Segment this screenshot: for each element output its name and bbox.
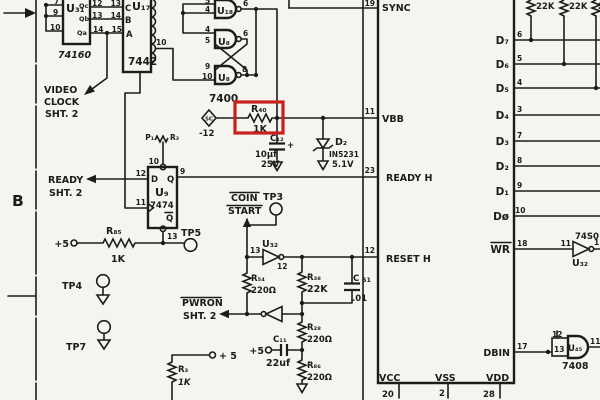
r38-ref: R₃₈	[307, 273, 321, 283]
wr-label: WR	[490, 244, 510, 256]
junction-dot	[300, 348, 304, 352]
pullup-resistors: 22K 22K 22K	[527, 0, 600, 90]
wr-inv-pin-out: 1	[594, 238, 599, 247]
u9-pin10: 10	[149, 157, 159, 166]
tp7-testpoint-icon	[98, 321, 111, 334]
d5-label: D₅	[496, 83, 510, 95]
r54-ref: R₅₄	[251, 274, 265, 284]
u17-in-b: B	[125, 16, 131, 26]
r3-plus5-label: + 5	[219, 351, 237, 362]
r54-value: 220Ω	[251, 286, 276, 296]
r3-network: + 5 R₃ 1K	[168, 351, 237, 400]
r85-resistor	[103, 239, 135, 247]
wr-inverter-icon	[573, 242, 589, 257]
c11-plus5-label: +5	[249, 346, 264, 357]
u45-ref: U₄₅	[568, 344, 583, 354]
junction-dot	[44, 3, 48, 7]
u8a-pin6: 6	[243, 29, 248, 38]
video-clock-arrow-icon	[84, 85, 95, 95]
data-bus-wires	[514, 40, 600, 352]
video-clock-wire	[92, 33, 107, 89]
d2-pin: 8	[517, 156, 522, 165]
pullup-value-2: 22K	[569, 2, 588, 12]
coin-label: COIN	[231, 193, 258, 204]
u9-ref: U₉	[155, 186, 169, 199]
u8b-pin9: 9	[205, 62, 210, 71]
reset-h-label: RESET H	[386, 254, 431, 265]
vdd-label: VDD	[486, 373, 509, 384]
u8b-ref: U₈	[218, 73, 230, 84]
junction-dot	[275, 116, 279, 120]
ready-out-arrow-icon	[86, 175, 96, 183]
video-clock-line1: VIDEO	[44, 85, 77, 96]
minus12-label: -12	[199, 129, 214, 139]
u8a-ref: U₈	[218, 37, 230, 48]
u18-pin4: 4	[205, 5, 210, 14]
junction-dot	[105, 31, 109, 35]
u45-pin11: 11	[590, 337, 600, 346]
wr-pin-number: 18	[517, 239, 527, 248]
u18-bubble-icon	[236, 7, 241, 12]
u9-pin11: 11	[136, 198, 146, 207]
dbin-gate-u45: 12 13 U₄₅ 11 7408	[546, 330, 600, 372]
pwron-inverter-icon	[266, 307, 282, 322]
d6-pin: 5	[517, 54, 522, 63]
schematic-scan: B U₃₁ Qc Qb Qa 7 9 10 12 13 14 74160 U₁₇…	[0, 0, 600, 400]
junction-dot	[350, 255, 354, 259]
junction-dot	[161, 241, 165, 245]
d1-label: D₁	[496, 186, 510, 198]
pwron-label: PWRON	[182, 298, 223, 309]
dbin-pin-number: 17	[517, 342, 527, 351]
junction-dot	[254, 73, 258, 77]
r86-resistor	[298, 360, 306, 380]
sync-pin-number: 19	[365, 0, 375, 8]
vcc-pin-number: 20	[382, 390, 394, 400]
r28-resistor	[298, 322, 306, 342]
plus5-terminal-icon	[210, 352, 216, 358]
u8a-pin4: 4	[205, 25, 210, 34]
u17-pin14: 14	[111, 11, 121, 20]
u32-coin-pin12: 12	[277, 262, 287, 271]
r86-value: 220Ω	[307, 373, 332, 383]
junction-dot	[300, 255, 304, 259]
r3-ref: R₃	[178, 365, 189, 375]
zone-label: B	[12, 192, 24, 210]
u9-d-label: D	[151, 175, 158, 185]
pullup-resistor-1	[527, 0, 535, 16]
d7-label: D₇	[496, 35, 509, 47]
d4-pin: 3	[517, 105, 522, 114]
r85-ref: R₈₅	[106, 226, 122, 237]
u17-pin10: 10	[156, 38, 166, 47]
junction-dot	[594, 86, 598, 90]
vss-pin-number: 2	[439, 389, 445, 399]
d2-part: IN5231	[329, 150, 359, 159]
u17-part: 7442	[128, 56, 157, 68]
u32-coin-bubble-icon	[279, 255, 284, 260]
u9-qbar-label: Q	[166, 214, 173, 224]
u31-part: 74160	[58, 50, 91, 61]
c51-ref: C	[353, 274, 359, 284]
r86-ref: R₈₆	[307, 361, 321, 371]
c51-value: .01	[352, 294, 367, 304]
cpu-body	[378, 0, 514, 383]
junction-dot	[181, 11, 185, 15]
junction-dot	[300, 301, 304, 305]
pwron-sht2-label: SHT. 2	[183, 311, 216, 322]
vss-label: VSS	[435, 373, 456, 384]
junction-dot	[321, 116, 325, 120]
vcc-label: VCC	[379, 373, 400, 384]
d7-pin: 6	[517, 30, 522, 39]
power-source-ref: 5C	[205, 117, 213, 123]
wr-inverter: 11 74S0 U₃₂ 1	[561, 232, 600, 269]
r85-plus5-label: +5	[54, 239, 69, 250]
d1-pin: 9	[517, 181, 522, 190]
plus5-terminal-icon	[71, 240, 77, 246]
wr-inv-pin11: 11	[561, 239, 571, 248]
d3-label: D₃	[496, 136, 510, 148]
junction-dot	[44, 14, 48, 18]
u8b-bubble-icon	[236, 73, 241, 78]
junction-dot	[562, 62, 566, 66]
ready-pin-number: 23	[365, 166, 375, 175]
schematic-svg: B U₃₁ Qc Qb Qa 7 9 10 12 13 14 74160 U₁₇…	[0, 0, 600, 400]
u9-pin12: 12	[136, 169, 146, 178]
ready-out-line1: READY	[48, 175, 83, 186]
r28-ref: R₂₈	[307, 323, 321, 333]
tp4-testpoint-icon	[97, 275, 110, 288]
coin-start-reset: COIN START TP3 U₃₂ 13 12 R₅₄ 220Ω R₃₈ 22…	[181, 192, 378, 393]
r40-resistor	[248, 114, 272, 122]
start-label: START	[228, 206, 262, 217]
junction-dot	[300, 312, 304, 316]
preset-p-label: P₁	[145, 133, 154, 142]
d2-ground-icon	[318, 161, 328, 170]
vbb-pin-number: 11	[365, 107, 375, 116]
tp5-label: TP5	[181, 228, 201, 239]
u31-qa: Qa	[77, 29, 87, 37]
ready-h-label: READY H	[386, 173, 433, 184]
junction-dot	[546, 350, 550, 354]
d2-ref: D₂	[335, 137, 347, 148]
preset-resistor	[155, 136, 168, 142]
r28-value: 220Ω	[307, 335, 332, 345]
u31-pin12: 12	[92, 0, 102, 8]
pullup-value-1: 22K	[536, 2, 555, 12]
u9-pin13: 13	[167, 232, 177, 241]
tp5-testpoint-icon	[184, 239, 197, 252]
pwron-bubble-icon	[261, 312, 266, 317]
plus5-terminal-icon	[266, 347, 272, 353]
sync-latch-7400: U₁₈ U₈ U₈ 5 4 6 4 5 6 9 10 8 7400	[181, 0, 289, 118]
u9-part: 7474	[150, 201, 174, 211]
cpu-8080: 19 SYNC 11 VBB 23 READY H 12 RESET H DBI…	[289, 0, 600, 400]
c12-ref: C₁₂	[270, 134, 284, 144]
ready-out-line2: SHT. 2	[49, 188, 82, 199]
tp3-label: TP3	[263, 192, 283, 203]
u45-pin13: 13	[554, 345, 564, 354]
u17-ref: U₁₇	[132, 0, 151, 13]
u31-pin9: 9	[53, 8, 58, 17]
u31-pin14: 14	[93, 25, 103, 34]
junction-dot	[254, 7, 258, 11]
vbb-label: VBB	[382, 114, 404, 125]
r3-resistor	[168, 362, 176, 382]
test-points: TP4 TP7	[62, 275, 110, 353]
u31-qc: Qc	[79, 2, 89, 10]
tp4-label: TP4	[62, 281, 82, 292]
u32-coin-ref: U₃₂	[262, 239, 278, 250]
u18-ref: U₁₈	[217, 6, 233, 17]
d3-pin: 7	[517, 131, 522, 140]
preset-r-label: R₃	[170, 133, 179, 142]
c51-capacitor	[344, 284, 360, 291]
vdd-pin-number: 28	[483, 390, 495, 400]
video-clock-line3: SHT. 2	[45, 109, 78, 120]
sheet-frame: B	[4, 0, 36, 400]
junction-dot	[245, 255, 249, 259]
d6-label: D₆	[496, 59, 510, 71]
r54-resistor	[243, 273, 251, 293]
u8a-bubble-icon	[236, 37, 241, 42]
r85-value: 1K	[111, 254, 126, 265]
dbin-label: DBIN	[483, 348, 510, 359]
c12-voltage: 25V	[261, 160, 280, 170]
reset-pin-number: 12	[365, 246, 375, 255]
tp7-label: TP7	[66, 342, 86, 353]
d0-label: Dø	[493, 211, 509, 223]
entry-arrow-icon	[25, 8, 36, 18]
junction-dot	[245, 312, 249, 316]
r3-value: 1K	[178, 378, 192, 388]
u31-pin10: 10	[50, 23, 60, 32]
d2-label: D₂	[496, 161, 510, 173]
pwron-arrow-icon	[219, 310, 229, 318]
d5-pin: 4	[517, 78, 522, 87]
u17-in-c: C	[125, 4, 131, 14]
u17-pin13: 13	[111, 0, 121, 8]
tp7-ground-icon	[98, 340, 110, 349]
c12-capacitor	[269, 144, 285, 150]
u31-pin13: 13	[92, 11, 102, 20]
u17-in-a: A	[126, 30, 133, 40]
junction-dot	[529, 38, 533, 42]
vbb-network: 5C -12 R₄₀ 1K C₁₂ + 10μf 25V D₂ IN5231 5…	[199, 102, 378, 171]
u9-pin9: 9	[180, 167, 185, 176]
u8b-pin8: 8	[242, 65, 247, 74]
pullup-wires	[531, 16, 596, 88]
c11-value: 22uf	[266, 358, 291, 369]
d2-voltage: 5.1V	[332, 160, 354, 170]
tp4-ground-icon	[97, 295, 109, 304]
c12-value: 10μf	[255, 150, 277, 160]
d0-pin: 10	[515, 206, 525, 215]
u45-pin12: 12	[552, 330, 562, 339]
sync-label: SYNC	[382, 3, 411, 14]
video-clock-line2: CLOCK	[44, 97, 80, 108]
r38-resistor	[298, 272, 306, 292]
r40-ref: R₄₀	[251, 104, 267, 115]
u8b-pin10: 10	[202, 72, 212, 81]
r38-value: 22K	[307, 284, 328, 295]
u31-pin7: 7	[54, 0, 59, 6]
c12-plus: +	[287, 141, 294, 151]
tp3-testpoint-icon	[270, 203, 282, 215]
u17-pin15: 15	[112, 25, 122, 34]
wr-inv-ref: U₃₂	[572, 258, 588, 269]
c11-ref: C₁₁	[273, 335, 287, 345]
u18-pin6: 6	[243, 0, 248, 8]
u9-q-label: Q	[167, 175, 174, 185]
pullup-resistor-2	[560, 0, 568, 16]
c11-capacitor	[281, 344, 287, 356]
u32-coin-pin13: 13	[250, 246, 260, 255]
r86-ground-icon	[297, 384, 307, 393]
u31-qb: Qb	[79, 15, 90, 23]
u8a-pin5: 5	[205, 36, 210, 45]
u45-part: 7408	[562, 361, 589, 372]
d4-label: D₄	[496, 110, 510, 122]
coin-arrow-icon	[243, 218, 251, 227]
